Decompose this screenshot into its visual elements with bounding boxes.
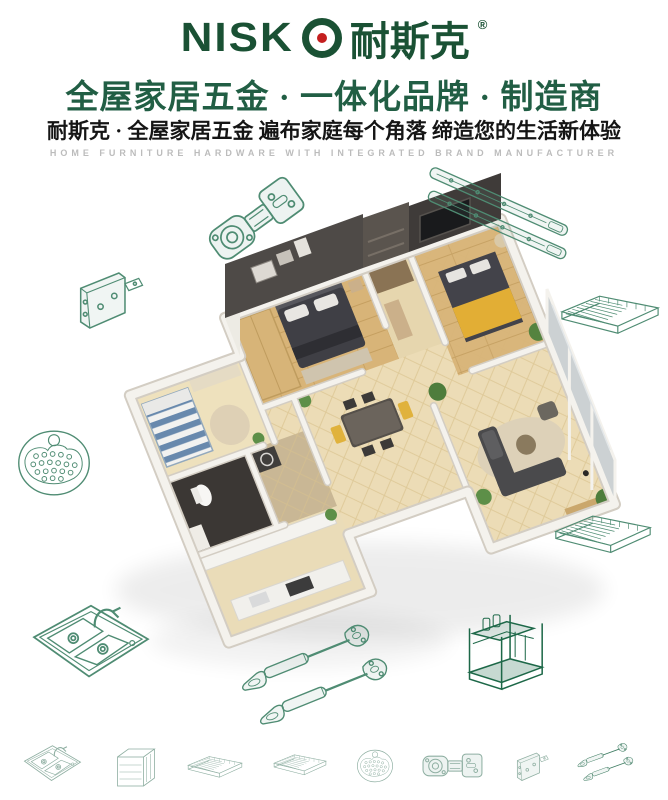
spice-rack-drawing <box>462 598 548 696</box>
cabinet-hinge-drawing <box>204 178 308 262</box>
subheadline: 耐斯克 · 全屋家居五金 遍布家庭每个角落 缔造您的生活新体验 <box>0 115 668 145</box>
logo-chinese-text: 耐斯克 <box>350 9 470 67</box>
wire-shelf-rack-top-drawing <box>558 292 662 342</box>
drawer-slide-rails-drawing <box>428 168 598 268</box>
product-strip <box>0 736 668 796</box>
english-tagline: HOME FURNITURE HARDWARE WITH INTEGRATED … <box>0 148 668 158</box>
mini-wire-drawer-basket-icon <box>186 749 244 783</box>
mini-double-bowl-sink-icon <box>20 739 84 793</box>
corner-bracket-drawing <box>70 262 154 336</box>
main-visual <box>0 160 668 738</box>
poster: NISK 耐斯克 ® 全屋家居五金 · 一体化品牌 · 制造商 耐斯克 · 全屋… <box>0 0 668 800</box>
logo-target-o-icon <box>302 18 342 58</box>
mini-round-strainer-icon <box>356 748 394 784</box>
brand-logo: NISK 耐斯克 ® <box>0 10 668 66</box>
mini-pullout-basket-cabinet-icon <box>112 740 158 792</box>
double-bowl-sink-drawing <box>26 592 154 702</box>
mini-corner-bracket-icon <box>512 747 554 785</box>
mini-cabinet-hinge-icon <box>422 747 484 785</box>
logo-latin-text: NISK <box>181 15 294 61</box>
round-strainer-drawing <box>16 428 92 498</box>
gas-strut-pair-drawing <box>254 636 422 736</box>
mini-gas-strut-pair-icon <box>582 742 648 790</box>
registered-mark: ® <box>478 17 488 32</box>
headline: 全屋家居五金 · 一体化品牌 · 制造商 <box>0 70 668 118</box>
wire-shelf-rack-side-drawing <box>552 512 654 561</box>
mini-flat-wire-shelf-icon <box>272 752 328 780</box>
